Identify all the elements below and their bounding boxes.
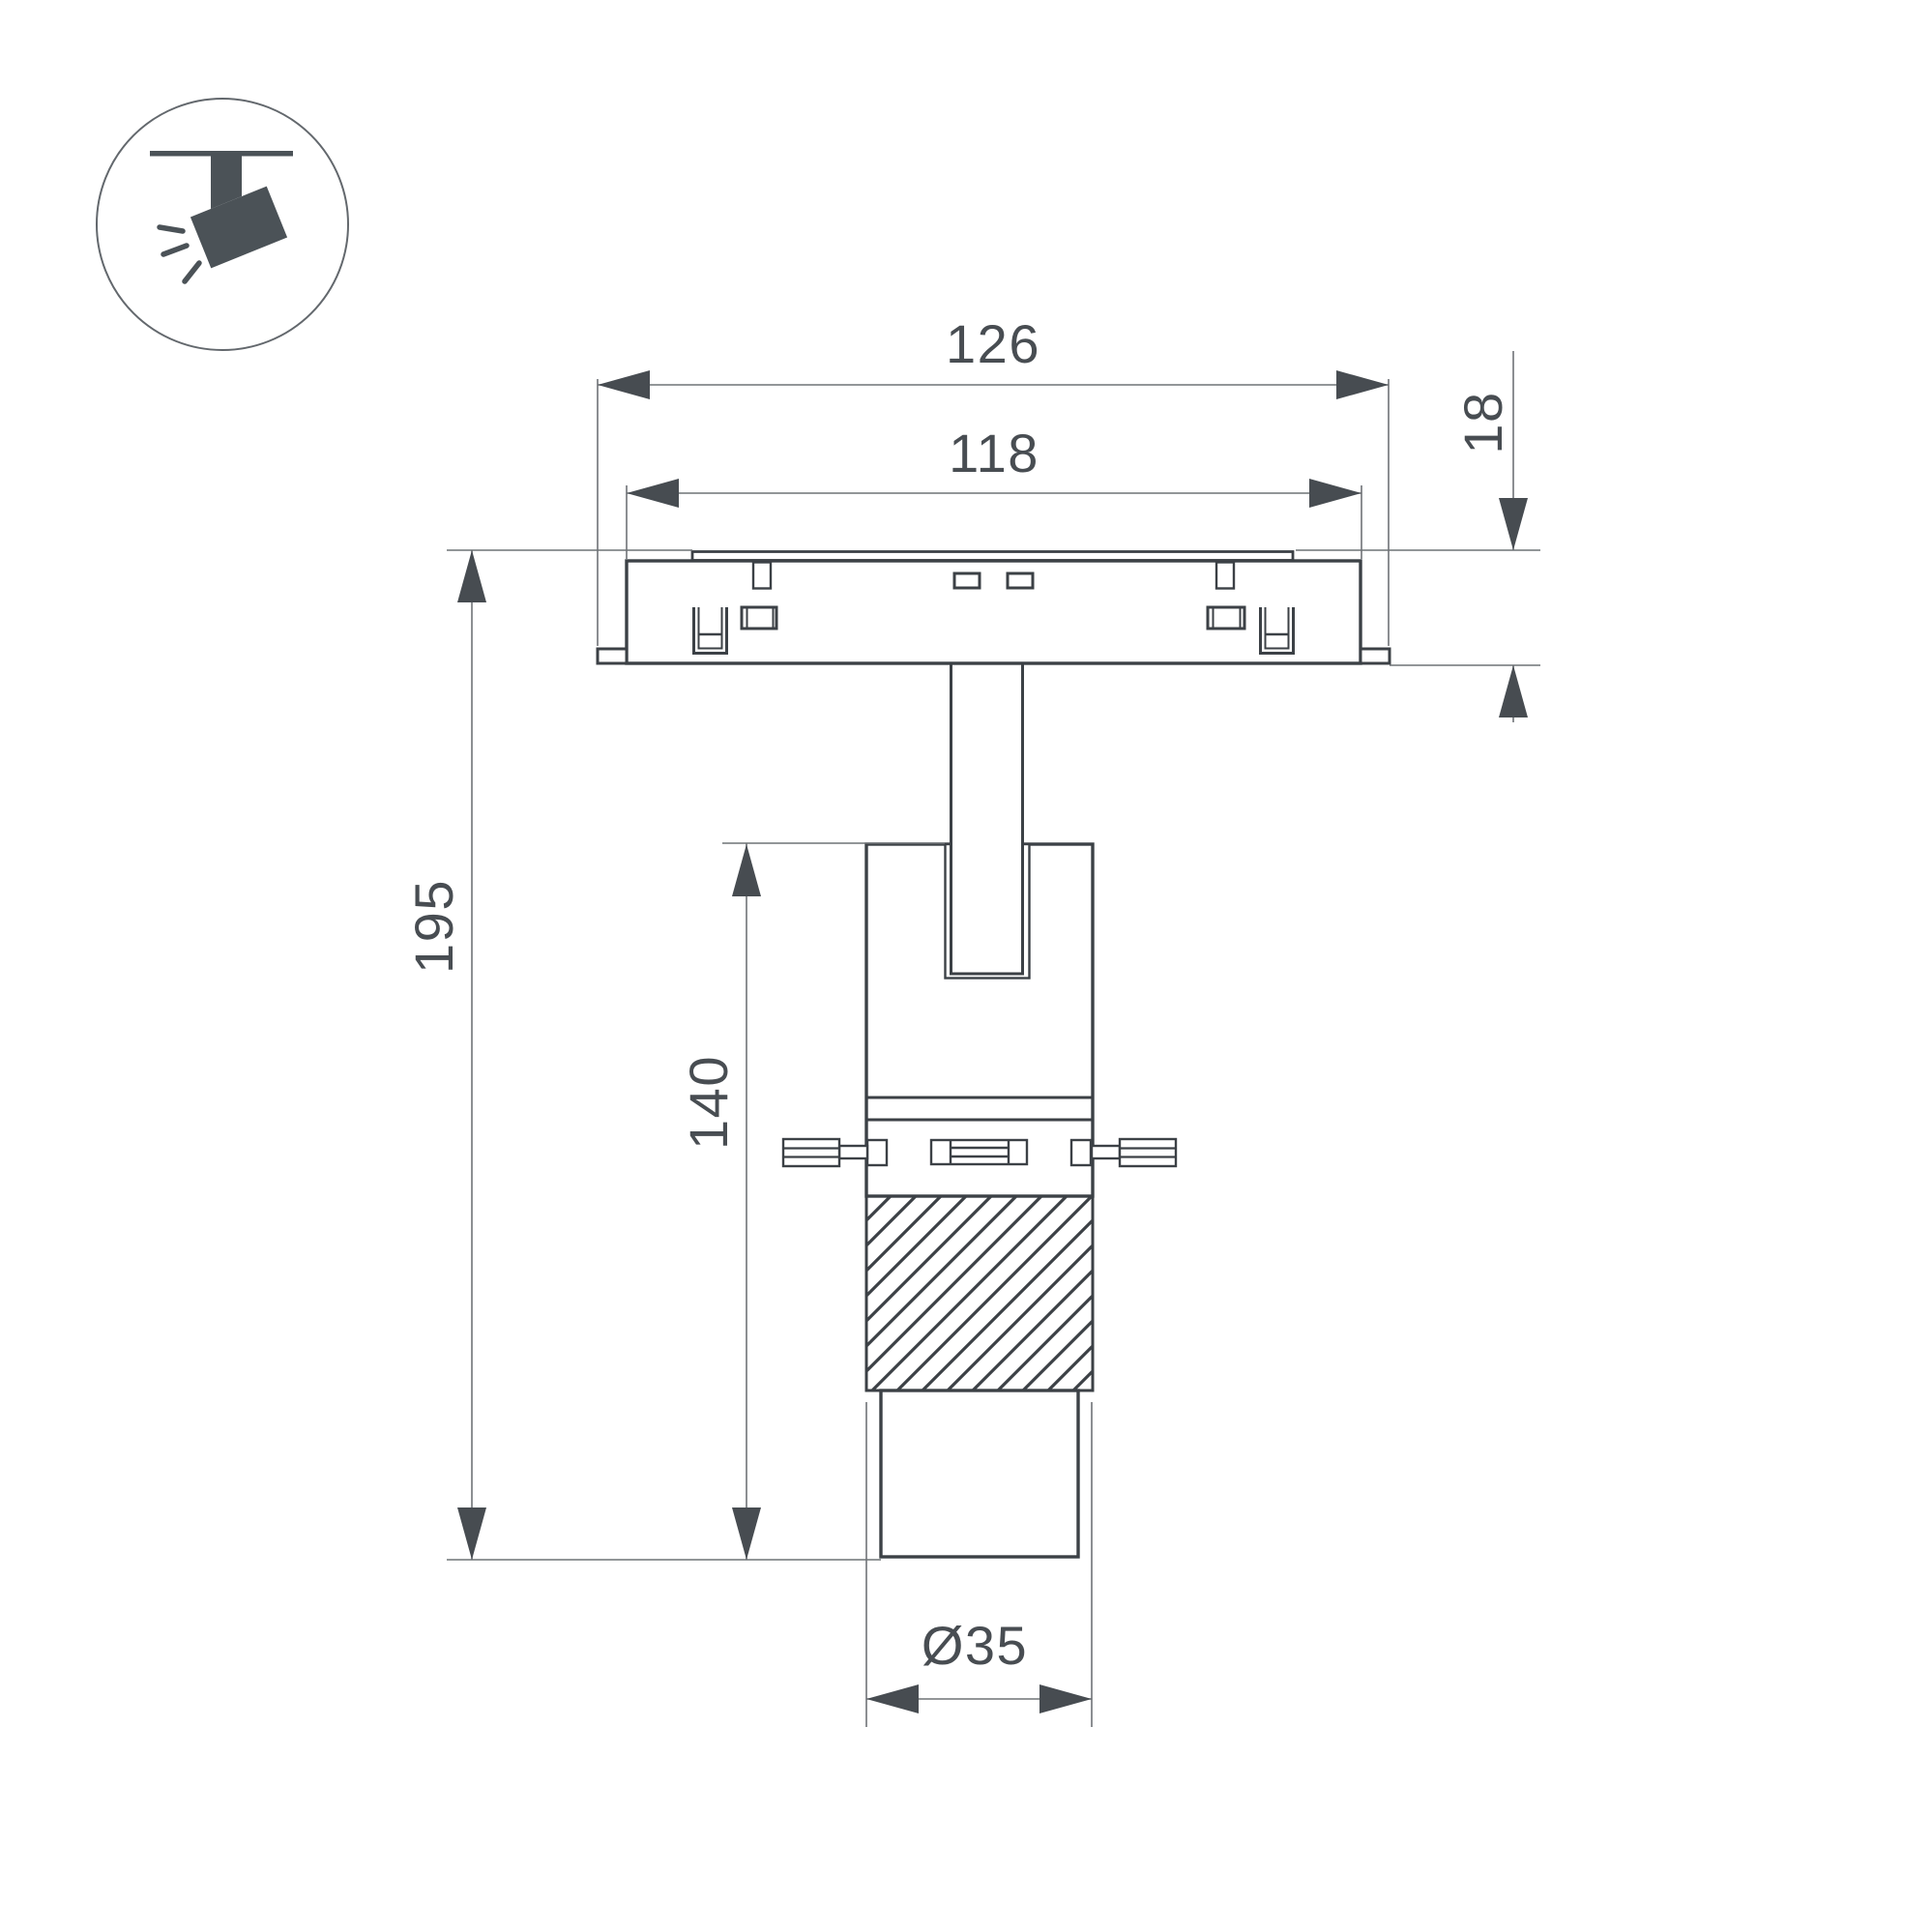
knurled-section [866,1196,1093,1390]
knob-left [783,1139,887,1166]
icon-light-ray [163,246,187,254]
contact-window-right [1008,573,1033,588]
dimension-track-height: 18 [1296,351,1540,722]
arrow-right-icon [1309,479,1361,508]
arrow-up-icon [732,844,761,896]
pivot-barrel [931,1140,1027,1164]
latch-block-right [1208,607,1244,629]
track-tab-left [753,563,771,589]
icon-light-ray [185,263,199,281]
latch-block-left [742,607,776,629]
suspension-stem [951,663,1023,974]
dim-label-118: 118 [949,423,1039,483]
track-top-plate [692,552,1293,561]
track-tab-right [1216,563,1234,589]
dim-label-d35: Ø35 [922,1615,1028,1676]
track-foot-right [1361,649,1390,663]
contact-window-left [954,573,980,588]
knob-right [1071,1139,1176,1166]
dim-label-126: 126 [946,313,1040,374]
arrow-left-icon [598,370,650,399]
track-foot-left [598,649,627,663]
arrow-down-icon [457,1508,486,1560]
lens-cylinder [881,1390,1078,1557]
arrow-left-icon [627,479,679,508]
arrow-left-icon [866,1684,919,1713]
arrow-down-icon [732,1508,761,1560]
dim-label-140: 140 [678,1055,739,1150]
arrow-up-icon [1499,665,1528,717]
fixture-front-view [598,552,1390,1558]
dimension-total-height: 195 [403,550,881,1560]
dim-label-18: 18 [1452,391,1513,454]
arrow-up-icon [457,550,486,602]
track-body [627,561,1361,663]
technical-drawing-page: 126 118 18 195 140 Ø35 [0,0,1932,1932]
arrow-right-icon [1336,370,1389,399]
fixture-icon [97,99,348,350]
icon-light-ray [160,227,183,231]
arrow-down-icon [1499,498,1528,550]
icon-ceiling-bar [150,151,293,157]
arrow-right-icon [1039,1684,1092,1713]
icon-lamp-body [190,187,287,269]
dimension-inner-width: 118 [627,423,1361,559]
dim-label-195: 195 [403,879,464,974]
technical-drawing-svg: 126 118 18 195 140 Ø35 [0,0,1932,1932]
